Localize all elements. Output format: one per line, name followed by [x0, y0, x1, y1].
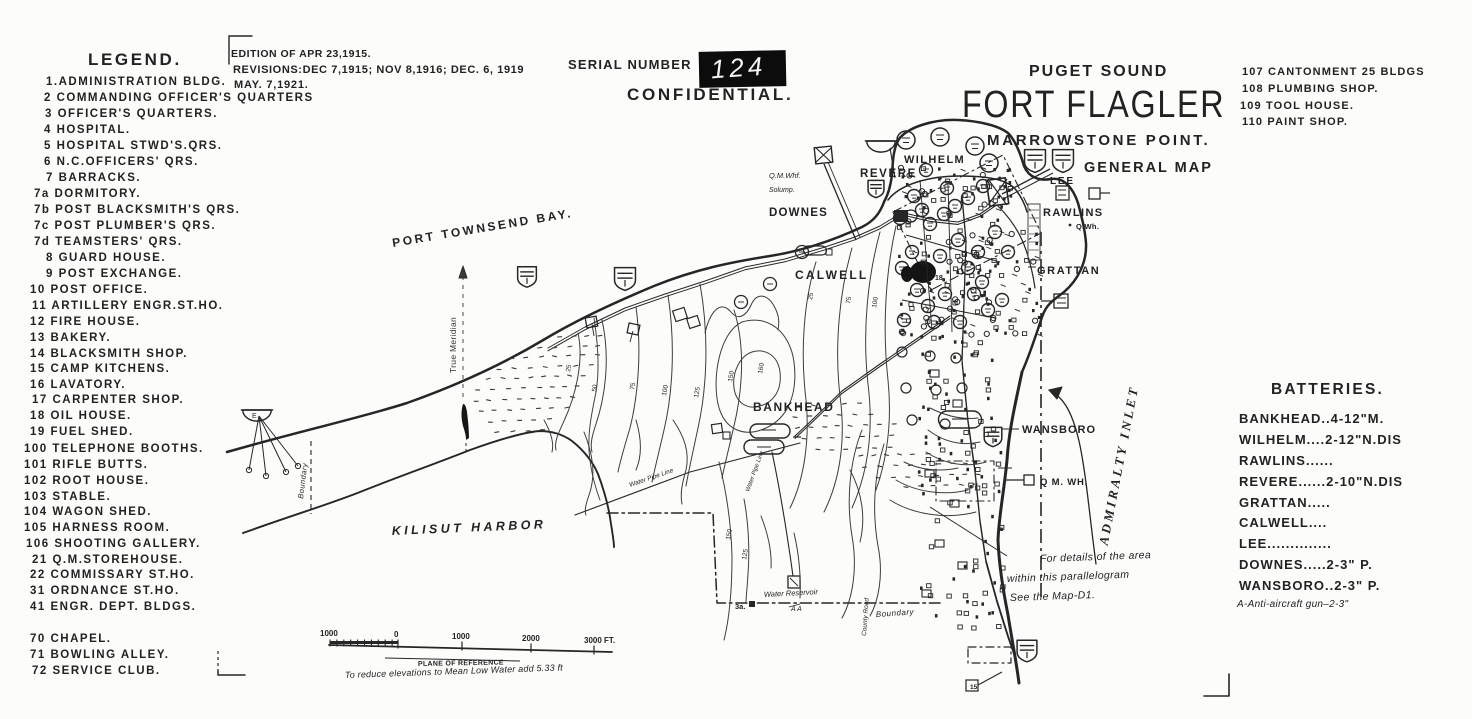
- svg-text:Water Reservoir: Water Reservoir: [764, 587, 819, 599]
- svg-text:Water Pipe Line: Water Pipe Line: [628, 467, 674, 489]
- svg-text:LEE: LEE: [1050, 176, 1075, 187]
- svg-text:Q.Wh.: Q.Wh.: [1076, 222, 1099, 231]
- svg-text:75: 75: [845, 296, 853, 305]
- svg-text:25: 25: [807, 292, 815, 301]
- svg-text:CALWELL: CALWELL: [795, 268, 868, 282]
- svg-text:ADMIRALTY INLET: ADMIRALTY INLET: [1096, 384, 1142, 547]
- svg-text:3a.: 3a.: [735, 602, 745, 611]
- svg-text:Solump.: Solump.: [769, 187, 795, 194]
- svg-text:0: 0: [394, 630, 399, 639]
- svg-text:25: 25: [565, 364, 573, 373]
- svg-text:2000: 2000: [522, 634, 540, 643]
- svg-text:E: E: [252, 413, 257, 420]
- svg-text:150: 150: [727, 370, 736, 382]
- svg-text:REVERE: REVERE: [860, 168, 917, 180]
- svg-text:PORT TOWNSEND BAY.: PORT TOWNSEND BAY.: [391, 206, 574, 250]
- svg-text:15: 15: [970, 684, 978, 691]
- svg-text:WANSBORO: WANSBORO: [1022, 424, 1096, 436]
- svg-text:KILISUT HARBOR: KILISUT HARBOR: [392, 517, 547, 538]
- svg-text:County Road: County Road: [861, 597, 871, 636]
- svg-text:Q.M.Whf.: Q.M.Whf.: [769, 171, 801, 180]
- svg-text:75: 75: [629, 382, 637, 391]
- svg-text:Boundary: Boundary: [876, 607, 915, 619]
- svg-text:DOWNES: DOWNES: [769, 207, 828, 219]
- svg-text:1000: 1000: [452, 632, 470, 641]
- svg-text:A A: A A: [790, 606, 802, 613]
- svg-text:Q M. WH.: Q M. WH.: [1040, 477, 1088, 488]
- svg-text:100: 100: [871, 296, 880, 308]
- svg-text:3000 FT.: 3000 FT.: [584, 636, 615, 645]
- svg-text:RAWLINS: RAWLINS: [1043, 207, 1104, 219]
- svg-text:Boundary: Boundary: [296, 462, 309, 500]
- svg-text:125: 125: [693, 386, 702, 398]
- svg-text:For details of the area: For details of the area: [1040, 549, 1152, 565]
- svg-text:GRATTAN: GRATTAN: [1037, 265, 1100, 277]
- svg-text:160: 160: [757, 362, 766, 374]
- svg-text:18: 18: [935, 275, 943, 282]
- svg-text:within this parallelogram: within this parallelogram: [1007, 569, 1130, 585]
- svg-text:1000: 1000: [320, 629, 338, 638]
- svg-text:See the Map-D1.: See the Map-D1.: [1010, 589, 1096, 604]
- svg-text:BANKHEAD: BANKHEAD: [753, 400, 834, 414]
- svg-text:100: 100: [661, 384, 670, 396]
- svg-text:50: 50: [591, 384, 599, 393]
- svg-text:WILHELM: WILHELM: [904, 154, 965, 166]
- svg-text:True Meridian: True Meridian: [448, 317, 458, 373]
- svg-text:150: 150: [725, 528, 734, 540]
